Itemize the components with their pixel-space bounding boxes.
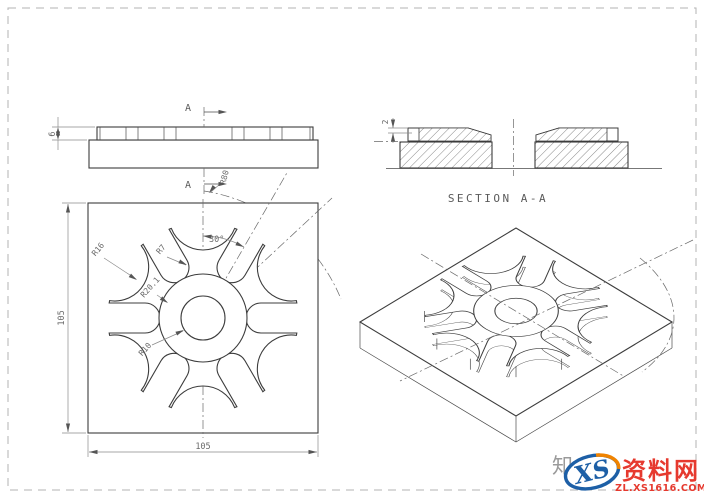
arrowhead-icon <box>219 110 228 114</box>
dim-recess-depth-label: 2 <box>381 119 390 124</box>
dim-plate-height-label: 105 <box>57 310 67 325</box>
dim-plate-width-label: 105 <box>195 442 210 452</box>
center-hole <box>181 296 225 340</box>
arrowhead-icon <box>66 204 70 213</box>
watermark: 知 XS 资料网 ZL.XS1616.COM <box>552 450 704 494</box>
watermark-site-url: ZL.XS1616.COM <box>615 483 704 494</box>
arrowhead-icon <box>209 185 216 193</box>
watermark-site-name: 资料网 <box>622 457 700 485</box>
drawing-sheet: 6 A A R80 2 SECTION A-A <box>0 0 704 498</box>
isometric-view <box>360 228 693 442</box>
section-caption: SECTION A-A <box>448 192 548 205</box>
engineering-drawing-canvas: 6 A A R80 2 SECTION A-A <box>0 0 704 498</box>
arrowhead-icon <box>391 133 395 142</box>
front-tooth-strip <box>97 127 313 140</box>
cut-label-top: A <box>185 103 191 114</box>
arrowhead-icon <box>66 424 70 433</box>
arrowhead-icon <box>89 450 98 454</box>
arrowhead-icon <box>391 120 395 129</box>
cut-label-bottom: A <box>185 180 191 191</box>
plan-view: 30° R16 R7 R20.1 R10 105 105 <box>57 171 332 457</box>
front-base-plate <box>89 140 318 168</box>
section-view: 2 SECTION A-A <box>374 118 662 205</box>
arrowhead-icon <box>309 450 318 454</box>
